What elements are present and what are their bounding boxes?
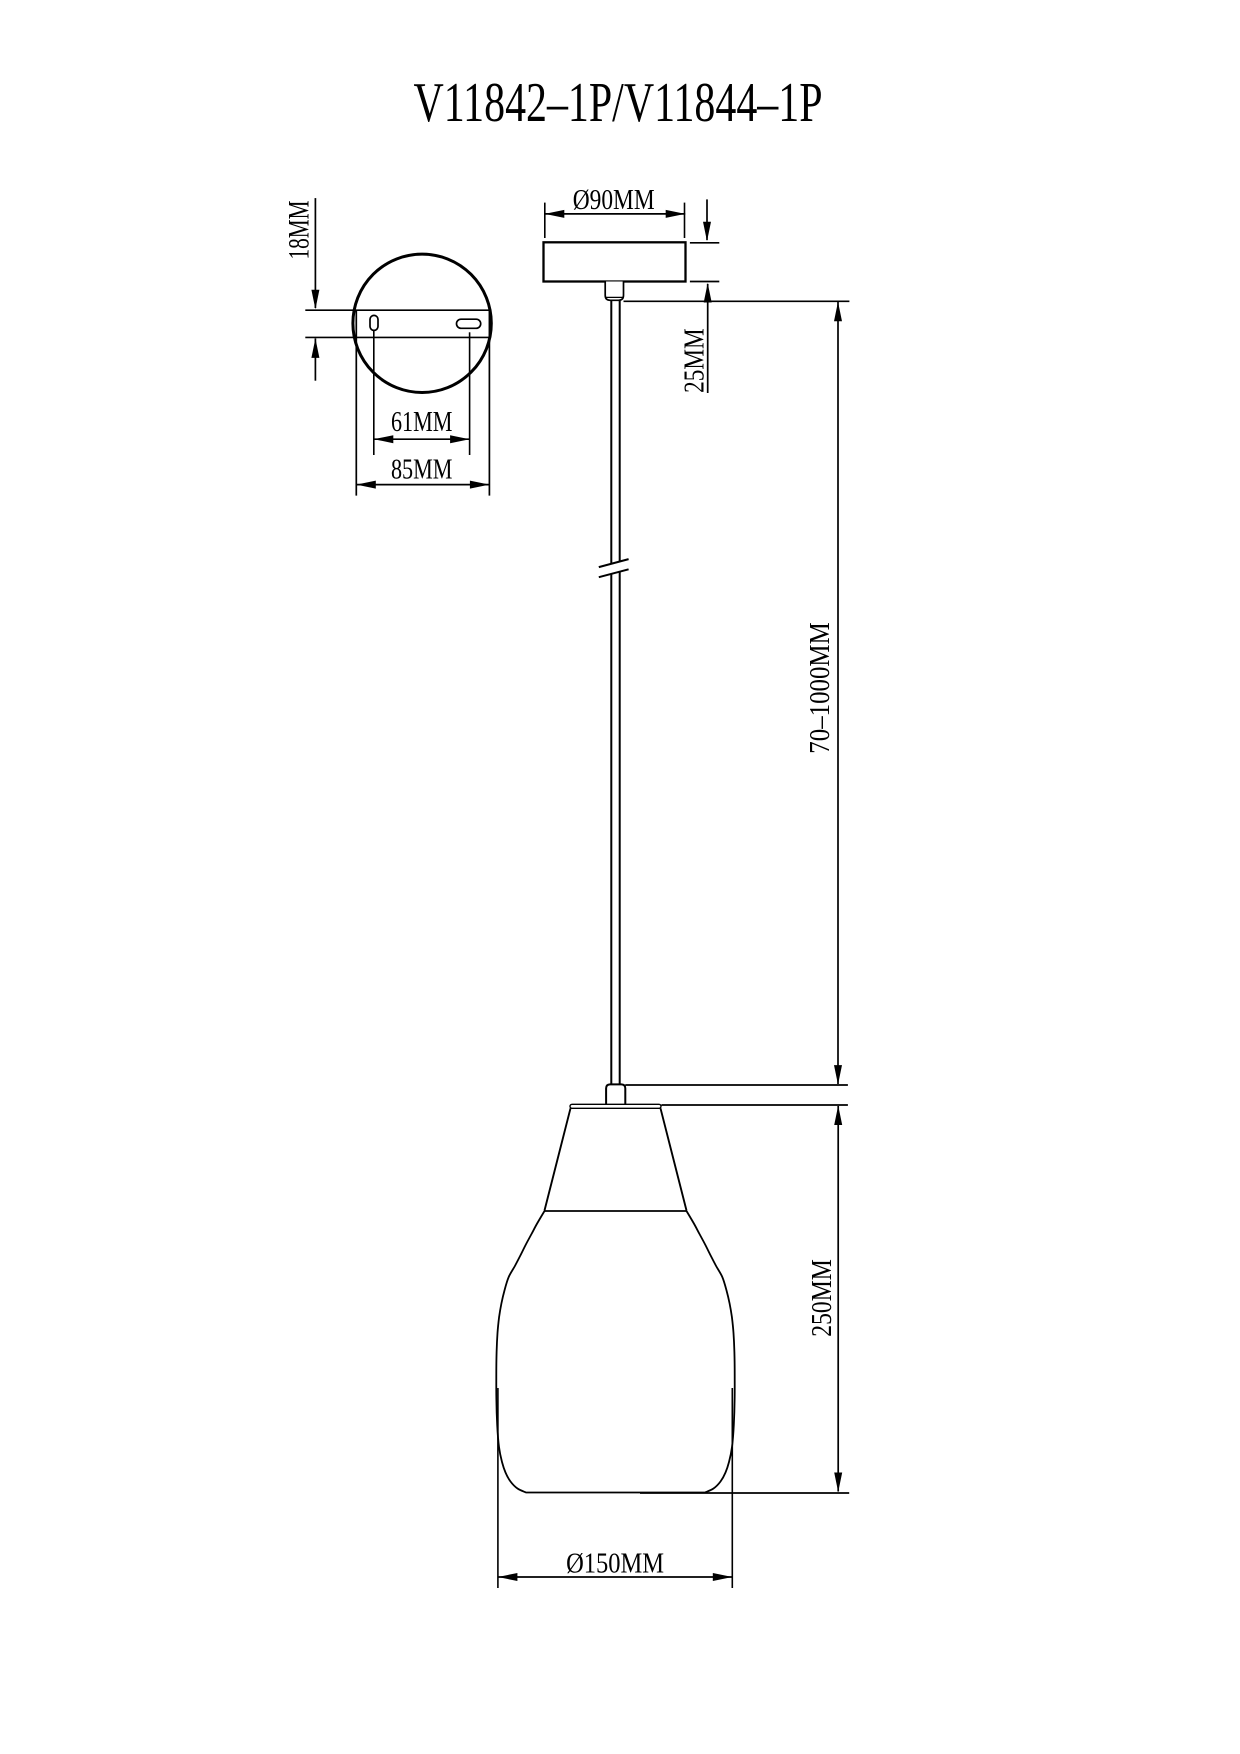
svg-text:61MM: 61MM <box>391 406 453 438</box>
svg-text:70–1000MM: 70–1000MM <box>804 622 836 753</box>
svg-text:25MM: 25MM <box>679 328 711 393</box>
svg-text:18MM: 18MM <box>283 201 316 260</box>
svg-text:Ø90MM: Ø90MM <box>573 184 655 216</box>
svg-text:85MM: 85MM <box>391 454 453 486</box>
svg-text:250MM: 250MM <box>806 1259 838 1337</box>
svg-text:V11842–1P/V11844–1P: V11842–1P/V11844–1P <box>414 72 823 134</box>
svg-text:Ø150MM: Ø150MM <box>566 1548 664 1580</box>
